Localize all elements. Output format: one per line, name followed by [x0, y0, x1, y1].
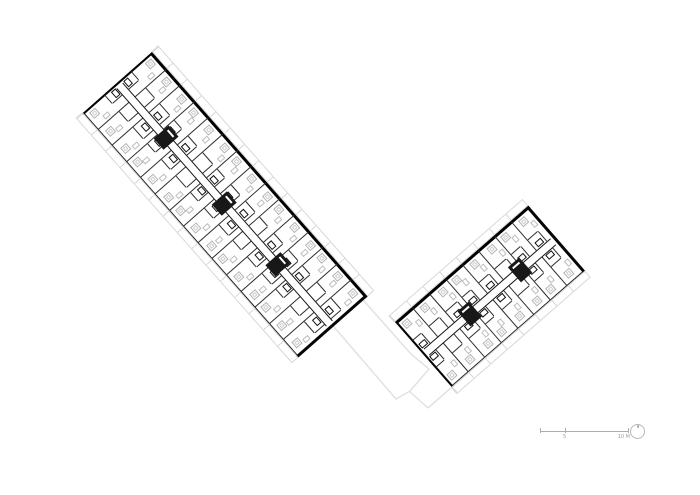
furniture-bed [500, 232, 511, 243]
partition-wall-h [478, 274, 489, 283]
partition-wall-h [511, 246, 520, 254]
partition-wall-h [428, 317, 439, 326]
furniture-table [215, 236, 224, 244]
furniture-table [143, 156, 152, 164]
furniture-bed [148, 174, 159, 185]
partition-wall-h [274, 233, 283, 243]
furniture-bed [191, 222, 202, 233]
furniture-bed [163, 191, 174, 202]
furniture-table [564, 258, 572, 267]
furniture-bed [495, 326, 506, 337]
furniture-table [480, 329, 488, 338]
partition-wall-h [501, 301, 512, 310]
partition-wall-h [412, 332, 421, 340]
furniture-table [274, 216, 283, 224]
partition-wall-v [453, 333, 462, 343]
furniture-table [511, 234, 519, 243]
furniture-bed [487, 243, 498, 254]
scale-bar: 5 10 M [540, 426, 629, 442]
furniture-bed [464, 353, 475, 364]
furniture-bed [545, 283, 556, 294]
furniture-table [187, 117, 196, 125]
furniture-table [186, 205, 195, 213]
furniture-table [115, 124, 124, 132]
furniture-bed [89, 107, 100, 118]
furniture-table [480, 263, 488, 272]
furniture-bed [316, 253, 327, 264]
furniture-table [230, 255, 239, 263]
north-arrow-icon [630, 424, 645, 439]
partition-wall-h [317, 282, 326, 292]
north-west-wing [83, 52, 367, 357]
furniture-bed [401, 318, 412, 329]
partition-wall-h [160, 103, 170, 115]
partition-wall-h [461, 289, 470, 297]
partition-wall-v [316, 292, 326, 301]
furniture-bed [513, 310, 524, 321]
furniture-bed [437, 286, 448, 297]
furniture-bed [105, 125, 116, 136]
scale-tick-zero [540, 428, 541, 433]
furniture-bed [563, 267, 574, 278]
furniture-table [302, 335, 311, 343]
furniture-bed [219, 142, 230, 153]
partition-wall-v [144, 98, 154, 107]
partition-wall-h [485, 316, 494, 324]
furniture-table [496, 318, 504, 327]
partition-wall-h [331, 298, 341, 310]
scale-label-ten-m: 10 M [618, 434, 630, 440]
partition-wall-h [176, 176, 186, 188]
partition-wall-h [452, 344, 463, 353]
furniture-bed [419, 302, 430, 313]
furniture-bed [121, 143, 132, 154]
furniture-table [300, 249, 309, 257]
partition-wall-v [128, 112, 138, 121]
partition-wall-h [247, 257, 256, 267]
partition-wall-h [231, 184, 240, 194]
furniture-bed [446, 369, 457, 380]
scale-tick-ten [628, 428, 629, 433]
partition-wall-h [146, 87, 155, 97]
partition-wall-h [494, 258, 506, 268]
partition-wall-h [534, 273, 543, 281]
furniture-bed [246, 173, 257, 184]
south-east-wing [395, 206, 584, 387]
scale-label-five: 5 [563, 434, 566, 440]
furniture-table [546, 274, 554, 283]
furniture-table [430, 307, 438, 316]
furniture-bed [518, 216, 529, 227]
partition-wall-h [551, 258, 562, 267]
partition-wall-v [299, 306, 309, 315]
partition-wall-v [258, 226, 268, 235]
furniture-table [259, 285, 268, 293]
furniture-table [159, 173, 168, 181]
partition-wall-h [290, 305, 299, 315]
partition-wall-h [188, 136, 197, 146]
furniture-table [202, 135, 211, 143]
floor-plan [0, 0, 700, 495]
furniture-bed [531, 295, 542, 306]
partition-wall-h [204, 208, 213, 218]
furniture-bed [231, 155, 242, 166]
partition-wall-v [439, 317, 448, 327]
furniture-bed [451, 275, 462, 286]
partition-wall-h [436, 359, 445, 367]
partition-wall-h [246, 201, 256, 213]
furniture-bed [145, 58, 156, 69]
furniture-table [286, 317, 295, 325]
partition-wall-h [527, 231, 538, 240]
partition-wall-h [518, 285, 530, 295]
furniture-bed [203, 125, 214, 136]
furniture-table [257, 199, 266, 207]
furniture-table [230, 166, 239, 174]
partition-wall-v [241, 240, 251, 249]
partition-wall-h [288, 249, 298, 261]
partition-wall-h [203, 152, 213, 164]
furniture-bed [273, 204, 284, 215]
furniture-bed [234, 271, 245, 282]
furniture-table [530, 219, 538, 228]
furniture-bed [218, 253, 229, 264]
partition-wall-h [161, 160, 170, 170]
furniture-bed [261, 302, 272, 313]
partition-wall-h [468, 328, 480, 338]
scale-tick-five [565, 428, 566, 433]
north-needle [637, 424, 639, 428]
scale-bar-line [540, 431, 629, 432]
furniture-table [448, 292, 456, 301]
furniture-bed [482, 338, 493, 349]
furniture-bed [289, 222, 300, 233]
furniture-table [344, 298, 353, 306]
furniture-bed [469, 259, 480, 270]
furniture-table [461, 278, 469, 287]
partition-wall-h [119, 111, 128, 121]
furniture-table [513, 302, 521, 311]
furniture-bed [188, 107, 199, 118]
